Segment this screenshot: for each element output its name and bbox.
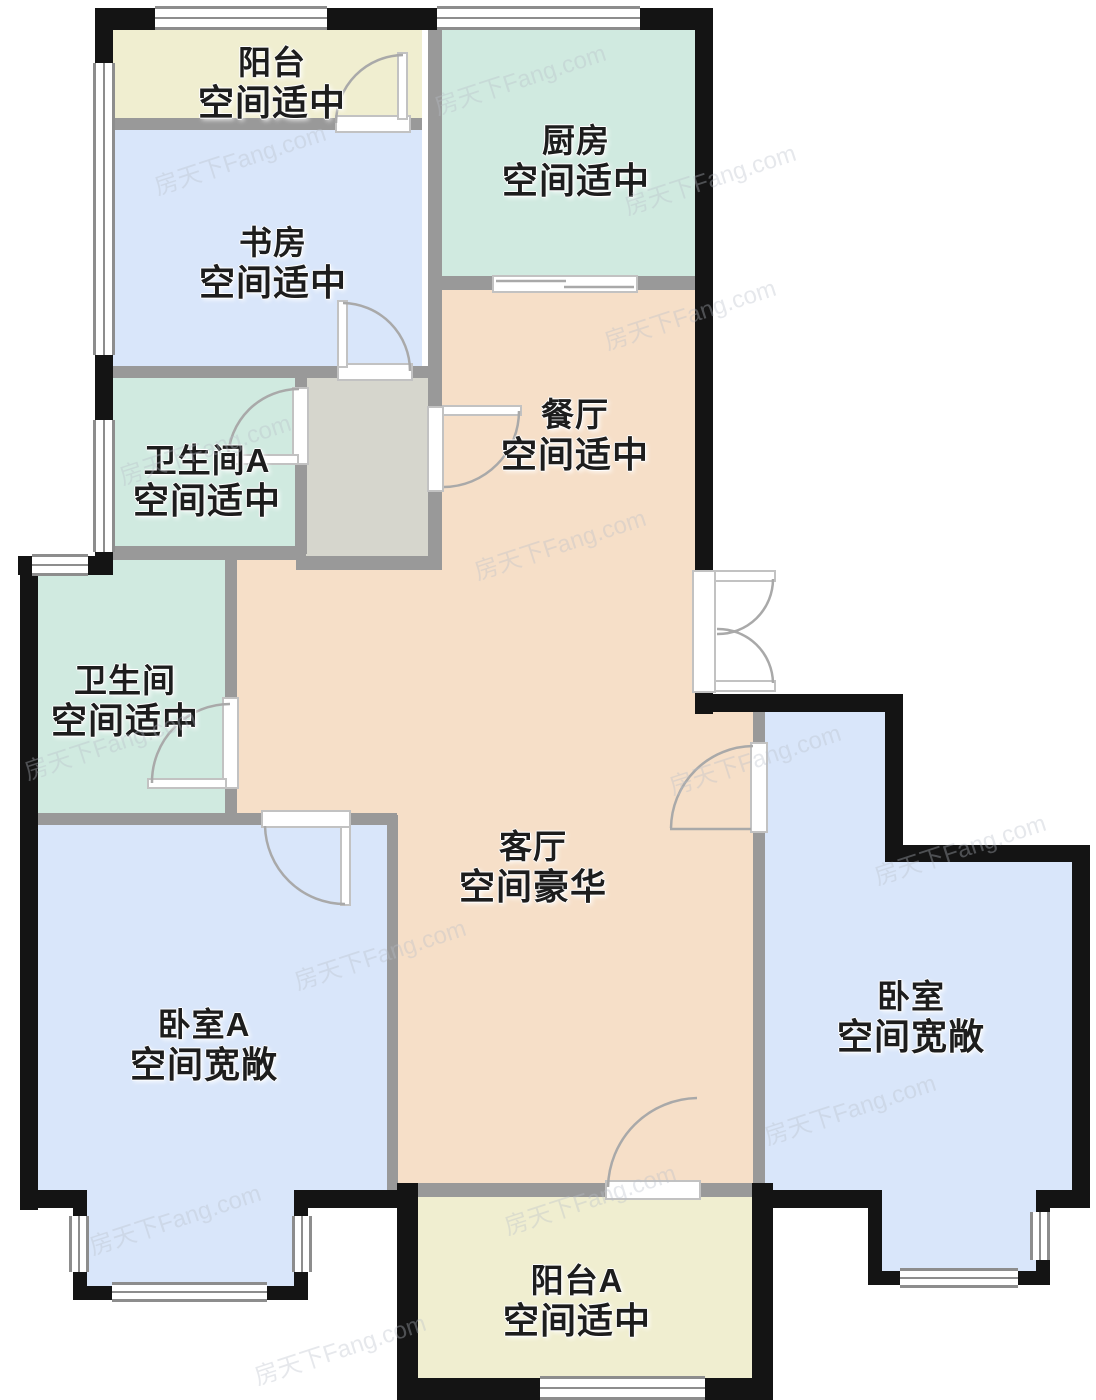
door-arc-bedroom-a: [265, 826, 345, 904]
room-name: 书房: [133, 224, 413, 262]
room-name: 卧室: [771, 978, 1051, 1016]
door-leaf-bedroom-a: [341, 827, 350, 905]
door-opening-entry: [693, 571, 715, 692]
door-leaf-entry-lower: [715, 681, 775, 691]
door-opening-bedroom-a: [262, 811, 350, 827]
room-desc: 空间适中: [67, 480, 347, 521]
label-bathroom-a: 卫生间A 空间适中: [67, 442, 347, 521]
label-dining: 餐厅 空间适中: [435, 396, 715, 475]
room-desc: 空间适中: [436, 160, 716, 201]
label-bedroom-a: 卧室A 空间宽敞: [64, 1006, 344, 1085]
room-name: 卫生间A: [67, 442, 347, 480]
door-arc-bedroom: [671, 746, 753, 828]
label-bathroom: 卫生间 空间适中: [0, 662, 265, 741]
room-desc: 空间适中: [132, 82, 412, 123]
label-living: 客厅 空间豪华: [393, 828, 673, 907]
room-name: 阳台: [132, 44, 412, 82]
floor-plan: 阳台 空间适中 厨房 空间适中 书房 空间适中 卫生间A 空间适中 餐厅 空间适…: [0, 0, 1096, 1400]
room-desc: 空间适中: [437, 1300, 717, 1341]
room-desc: 空间豪华: [393, 866, 673, 907]
room-desc: 空间适中: [133, 262, 413, 303]
label-balcony-a: 阳台A 空间适中: [437, 1262, 717, 1341]
label-bedroom: 卧室 空间宽敞: [771, 978, 1051, 1057]
room-name: 餐厅: [435, 396, 715, 434]
room-name: 阳台A: [437, 1262, 717, 1300]
room-desc: 空间宽敞: [64, 1044, 344, 1085]
room-name: 卧室A: [64, 1006, 344, 1044]
door-arc-study: [343, 303, 410, 371]
room-desc: 空间宽敞: [771, 1016, 1051, 1057]
door-arc-entry-lower: [717, 629, 773, 683]
door-arc-entry-upper: [717, 579, 773, 634]
room-desc: 空间适中: [435, 434, 715, 475]
door-leaf-bathroom: [148, 779, 226, 788]
door-opening-study: [338, 364, 412, 380]
door-opening-bedroom: [751, 743, 767, 832]
label-study: 书房 空间适中: [133, 224, 413, 303]
door-arc-balcony-a: [608, 1098, 697, 1187]
door-leaf-study: [338, 301, 347, 367]
passage-kitchen-dining: [493, 276, 637, 292]
room-name: 客厅: [393, 828, 673, 866]
room-desc: 空间适中: [0, 700, 265, 741]
room-name: 厨房: [436, 122, 716, 160]
door-opening-balcony-a: [606, 1181, 700, 1199]
room-name: 卫生间: [0, 662, 265, 700]
label-balcony: 阳台 空间适中: [132, 44, 412, 123]
door-leaf-entry-upper: [715, 571, 775, 581]
label-kitchen: 厨房 空间适中: [436, 122, 716, 201]
